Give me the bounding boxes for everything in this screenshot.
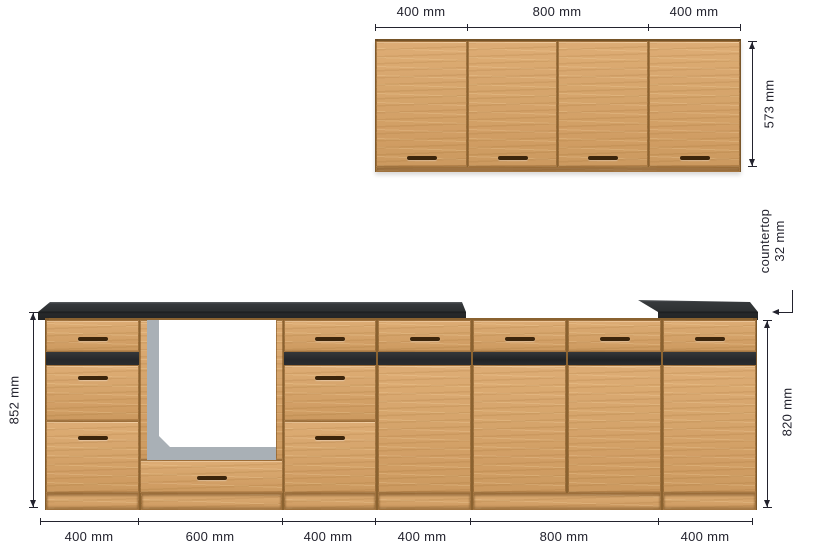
wall-width-label-1: 400 mm	[376, 4, 466, 19]
drawer-handle-icon	[410, 337, 440, 341]
base-width-label-6: 400 mm	[660, 529, 750, 544]
drawer-handle-icon	[315, 436, 345, 440]
wall-cabinet-run	[375, 39, 741, 172]
oven-side-stile	[276, 320, 283, 460]
black-accent-strip	[284, 352, 376, 365]
dim-tick	[375, 518, 376, 525]
arrow-down-icon	[749, 159, 755, 166]
wall-width-dimension-line	[375, 27, 741, 28]
dim-tick	[375, 24, 376, 31]
drawer-handle-icon	[315, 337, 345, 341]
arrow-up-icon	[764, 321, 770, 328]
wall-height-dimension-line	[752, 41, 753, 167]
bottom-drawer-front	[284, 421, 376, 493]
top-drawer-front	[473, 320, 566, 352]
drawer-handle-icon	[407, 156, 437, 160]
wall-cabinet-door	[468, 41, 557, 167]
base-height-820-label: 820 mm	[780, 388, 795, 437]
dim-cap	[29, 507, 38, 508]
top-drawer-front	[46, 320, 139, 352]
top-drawer-front	[663, 320, 756, 352]
plinth-panel	[141, 493, 282, 510]
black-accent-strip	[568, 352, 661, 365]
countertop-note-line1: countertop	[757, 209, 772, 273]
dim-cap	[748, 166, 757, 167]
plinth-panel	[284, 493, 376, 510]
base-width-label-4: 400 mm	[377, 529, 467, 544]
countertop-note-line2: 32 mm	[772, 209, 787, 273]
oven-opening	[159, 320, 276, 447]
wall-cabinet-door	[376, 41, 467, 167]
base-width-dimension-line	[40, 521, 753, 522]
base-cabinet-800-drawer-door-double	[472, 318, 662, 510]
drawer-handle-icon	[197, 476, 227, 480]
drawer-handle-icon	[588, 156, 618, 160]
dim-tick	[752, 518, 753, 525]
dim-tick	[138, 518, 139, 525]
plinth-panel	[46, 493, 139, 510]
wall-cabinet-bottom-board	[376, 167, 740, 172]
dim-cap	[763, 507, 772, 508]
dim-tick	[467, 24, 468, 31]
wall-cabinet-door	[649, 41, 740, 167]
drawer-handle-icon	[600, 337, 630, 341]
drawer-handle-icon	[78, 337, 108, 341]
middle-drawer-front	[284, 365, 376, 421]
plinth-panel	[663, 493, 756, 510]
countertop-leader-line	[779, 312, 793, 313]
arrow-up-icon	[749, 42, 755, 49]
middle-drawer-front	[46, 365, 139, 421]
arrow-down-icon	[30, 500, 36, 507]
wall-height-label: 573 mm	[762, 80, 777, 129]
kitchen-dimension-diagram: 400 mm 800 mm 400 mm 573 mm countertop 3…	[0, 0, 819, 552]
wall-width-label-3: 400 mm	[649, 4, 739, 19]
oven-bottom-drawer-front	[140, 460, 283, 493]
base-width-label-1: 400 mm	[44, 529, 134, 544]
arrow-down-icon	[764, 500, 770, 507]
base-cabinet-run	[45, 318, 757, 510]
dim-tick	[40, 518, 41, 525]
base-height-852-dimension-line	[33, 312, 34, 508]
wall-width-label-2: 800 mm	[512, 4, 602, 19]
countertop-leader-line	[792, 290, 793, 313]
drawer-handle-icon	[78, 436, 108, 440]
top-drawer-front	[378, 320, 471, 352]
arrow-up-icon	[30, 313, 36, 320]
plinth-panel	[378, 493, 471, 510]
top-drawer-front	[568, 320, 661, 352]
base-cabinet-400-drawers-3	[45, 318, 140, 510]
drawer-handle-icon	[505, 337, 535, 341]
base-cabinet-400-drawers-3	[283, 318, 377, 510]
door-front	[663, 365, 756, 493]
drawer-handle-icon	[680, 156, 710, 160]
dim-tick	[470, 518, 471, 525]
black-accent-strip	[663, 352, 756, 365]
base-cabinet-400-drawer-door	[377, 318, 472, 510]
black-accent-strip	[473, 352, 566, 365]
countertop-slab-right	[638, 300, 758, 320]
door-front	[473, 365, 566, 493]
base-height-852-label: 852 mm	[7, 376, 22, 425]
drawer-handle-icon	[498, 156, 528, 160]
top-drawer-front	[284, 320, 376, 352]
dim-tick	[740, 24, 741, 31]
door-front	[568, 365, 661, 493]
drawer-handle-icon	[315, 376, 345, 380]
dim-tick	[658, 518, 659, 525]
dim-tick	[282, 518, 283, 525]
base-width-label-2: 600 mm	[165, 529, 255, 544]
base-height-820-dimension-line	[767, 320, 768, 508]
base-width-label-5: 800 mm	[519, 529, 609, 544]
arrow-left-icon	[772, 309, 779, 315]
drawer-handle-icon	[78, 376, 108, 380]
black-accent-strip	[46, 352, 139, 365]
bottom-drawer-front	[46, 421, 139, 493]
dim-tick	[648, 24, 649, 31]
base-width-label-3: 400 mm	[283, 529, 373, 544]
base-cabinet-400-drawer-door	[662, 318, 757, 510]
plinth-panel	[473, 493, 661, 510]
wall-cabinet-door	[558, 41, 648, 167]
black-accent-strip	[378, 352, 471, 365]
door-front	[378, 365, 471, 493]
drawer-handle-icon	[695, 337, 725, 341]
countertop-note: countertop 32 mm	[757, 209, 787, 273]
base-cabinet-600-oven-housing	[140, 318, 283, 510]
